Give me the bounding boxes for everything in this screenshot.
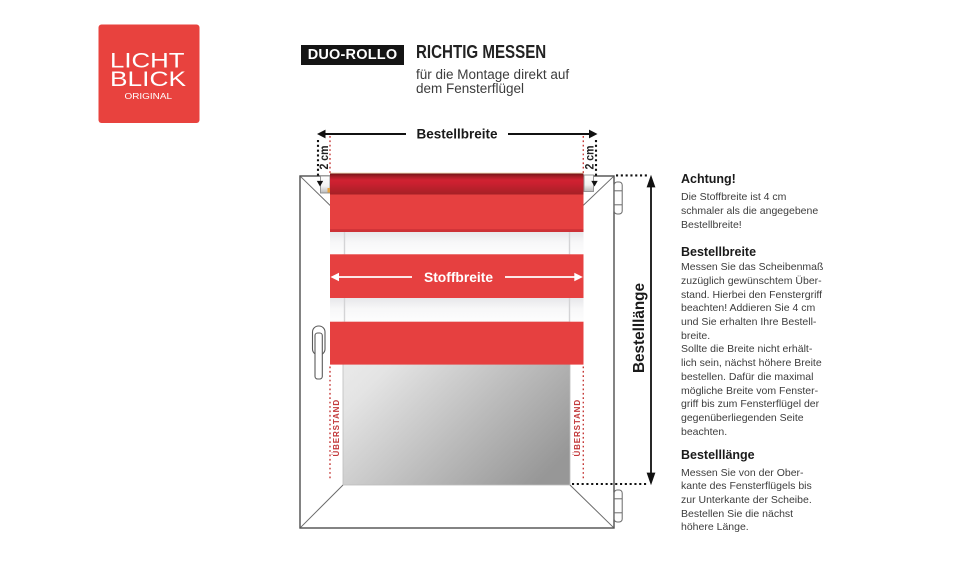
svg-text:Stoffbreite: Stoffbreite [424,270,494,285]
svg-text:2 cm: 2 cm [319,146,331,170]
svg-text:Bestellbreite: Bestellbreite [417,127,498,142]
svg-text:ÜBERSTAND: ÜBERSTAND [331,399,341,457]
svg-text:ÜBERSTAND: ÜBERSTAND [572,399,582,457]
svg-text:2 cm: 2 cm [585,146,597,170]
svg-text:Bestelllänge: Bestelllänge [631,283,648,373]
